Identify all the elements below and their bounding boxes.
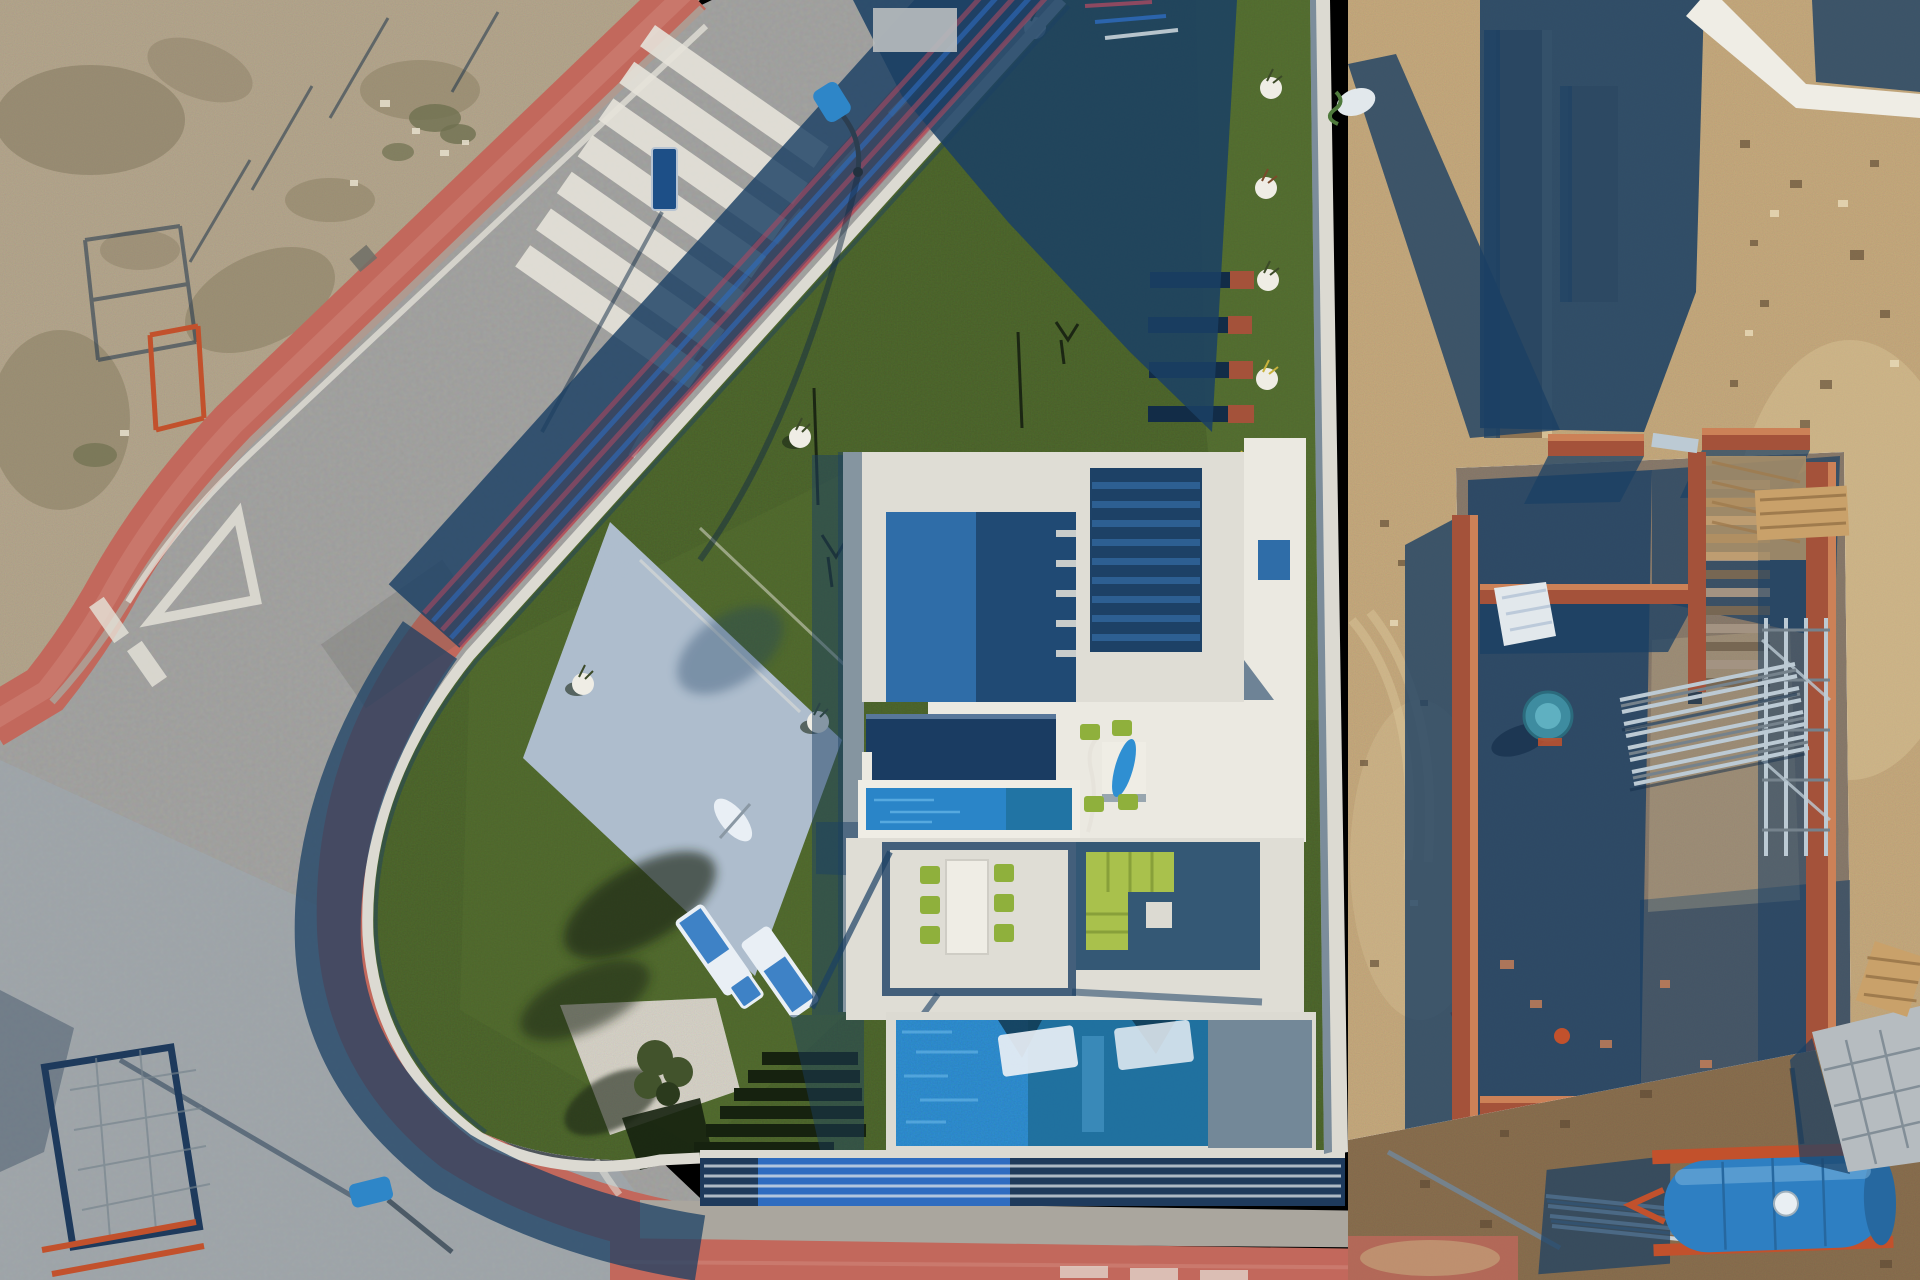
long-dining-set xyxy=(920,860,1014,954)
stair-treads xyxy=(1092,482,1200,641)
stairwell xyxy=(1090,468,1202,652)
aerial-photo xyxy=(0,0,1920,1280)
long-table xyxy=(946,860,988,954)
mark xyxy=(1130,1268,1178,1280)
bed-end xyxy=(1230,271,1254,289)
coffee-table xyxy=(1146,902,1172,928)
west-wall-lit xyxy=(1470,515,1478,1127)
pool-east-shade xyxy=(1208,1020,1312,1148)
lounge-deck xyxy=(1076,842,1260,970)
step xyxy=(1056,530,1076,537)
mixer-mouth xyxy=(1535,703,1561,729)
canopy-edge xyxy=(866,714,1056,719)
lamp-pole-top xyxy=(853,167,863,177)
corner-sofa xyxy=(1086,892,1128,950)
swimming-pool xyxy=(886,1012,1316,1152)
mixer-base xyxy=(1538,738,1562,746)
courtyard-deep xyxy=(976,512,1076,702)
step xyxy=(1056,620,1076,627)
bush xyxy=(73,443,117,467)
mark xyxy=(1200,1270,1248,1280)
south-fence xyxy=(700,1150,1345,1206)
orange-bucket xyxy=(1554,1028,1570,1044)
bed-end xyxy=(1229,361,1253,379)
north-wall-left-lit xyxy=(1548,434,1644,441)
north-wall-right-lit xyxy=(1702,428,1810,435)
tarp xyxy=(1494,582,1556,646)
bed-end xyxy=(1228,316,1252,334)
aerial-photo-canvas xyxy=(0,0,1920,1280)
inner-wall xyxy=(1688,452,1706,692)
shadow-ne-corner xyxy=(1812,0,1920,92)
roof-vent xyxy=(1258,540,1290,580)
spa-strip xyxy=(858,780,1080,838)
west-wall-shadow xyxy=(1405,520,1452,1145)
bush xyxy=(382,143,414,161)
step xyxy=(1056,650,1076,657)
bush xyxy=(440,124,476,144)
scrub-patch xyxy=(0,65,185,175)
waterfall-streak xyxy=(1082,1036,1104,1132)
east-wall-lit xyxy=(1828,462,1836,1112)
construction-site xyxy=(1405,428,1852,1164)
mark xyxy=(1060,1266,1108,1278)
step xyxy=(1056,590,1076,597)
tank-cap xyxy=(1774,1191,1799,1216)
scrub-patch xyxy=(285,178,375,222)
fence-top-wall xyxy=(700,1150,1345,1159)
spa-shaded xyxy=(1006,788,1072,830)
tree-canopy xyxy=(656,1082,680,1106)
step xyxy=(1056,560,1076,567)
wall-top-sunlit xyxy=(873,8,957,52)
bed-end xyxy=(1228,405,1254,423)
sand-dusting xyxy=(1360,1240,1500,1276)
sign-board xyxy=(652,148,677,210)
reflective-tarp xyxy=(1494,582,1556,646)
pallet-ne xyxy=(1755,486,1849,541)
